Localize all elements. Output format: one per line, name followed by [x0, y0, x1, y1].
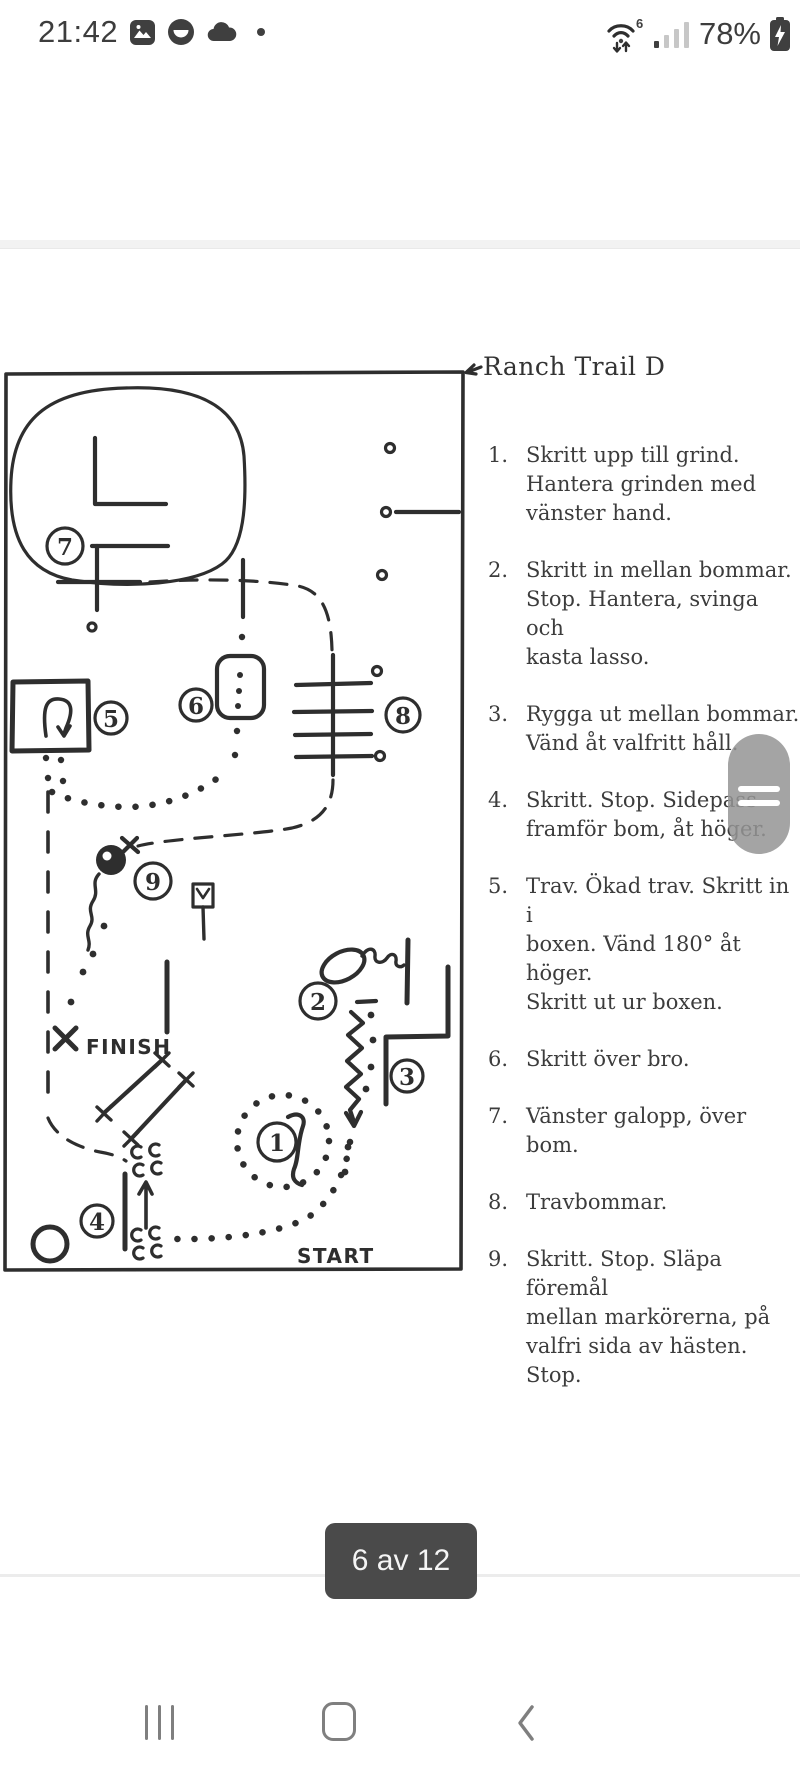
instruction-item: 7. Vänster galopp, över bom. — [488, 1102, 800, 1160]
obstacle-8-trot-poles: 8 — [294, 655, 420, 775]
svg-text:3: 3 — [399, 1064, 415, 1091]
scroll-handle[interactable] — [728, 734, 790, 854]
path-dashed-corner — [48, 1118, 126, 1161]
svg-text:7: 7 — [57, 534, 73, 561]
page-title: Ranch Trail D — [483, 352, 665, 381]
svg-text:1: 1 — [269, 1130, 285, 1157]
obstacle-1-circle: 1 — [176, 1095, 350, 1239]
instruction-number: 8. — [488, 1188, 526, 1217]
back-chevron-icon — [520, 1707, 532, 1739]
svg-text:5: 5 — [103, 706, 119, 733]
obstacle-2-lasso: 2 — [300, 943, 404, 1019]
instruction-text: Skritt in mellan bommar. Stop. Hantera, … — [526, 556, 800, 672]
obstacle-4-sidepass: 4 — [33, 1144, 161, 1261]
arena-border — [5, 372, 463, 1270]
instruction-number: 1. — [488, 441, 526, 528]
instruction-text: Skritt över bro. — [526, 1045, 690, 1074]
scroll-handle-grip-line — [738, 786, 780, 792]
gate-markers — [378, 444, 460, 580]
status-left-cluster: 21:42 — [38, 14, 265, 50]
svg-text:6: 6 — [188, 693, 204, 720]
instruction-item: 9. Skritt. Stop. Släpa föremål mellan ma… — [488, 1245, 800, 1390]
instruction-number: 2. — [488, 556, 526, 672]
notification-dot-icon — [257, 28, 265, 36]
gallery-notification-icon — [129, 19, 156, 46]
instruction-number: 9. — [488, 1245, 526, 1390]
diagonal-poles — [97, 1053, 193, 1146]
status-right-cluster: 6 78% — [603, 14, 792, 54]
svg-text:6: 6 — [636, 16, 643, 31]
instruction-text: Skritt. Stop. Släpa föremål mellan markö… — [526, 1245, 800, 1390]
top-divider — [0, 240, 800, 249]
instruction-list: 1. Skritt upp till grind. Hantera grinde… — [488, 441, 800, 1418]
obstacle-9-drag-object: 9 — [68, 838, 171, 1005]
obstacle-7-gallop-loop: 7 — [11, 388, 245, 617]
instruction-item: 8. Travbommar. — [488, 1188, 800, 1217]
battery-charging-icon — [768, 16, 792, 52]
instruction-text: Travbommar. — [526, 1188, 667, 1217]
home-button[interactable] — [322, 1702, 356, 1741]
instruction-item: 6. Skritt över bro. — [488, 1045, 800, 1074]
svg-text:9: 9 — [145, 869, 161, 896]
back-button[interactable] — [517, 1704, 535, 1742]
start-label: START — [297, 1244, 375, 1268]
svg-text:2: 2 — [310, 989, 326, 1016]
svg-text:8: 8 — [395, 703, 411, 730]
page-indicator: 6 av 12 — [325, 1523, 477, 1599]
path-dotted-walk — [43, 755, 228, 807]
signal-bars-icon — [652, 17, 692, 51]
instruction-text: Trav. Ökad trav. Skritt in i boxen. Vänd… — [526, 872, 800, 1017]
course-map: 7 8 5 6 — [0, 360, 485, 1275]
battery-percent: 78% — [699, 16, 761, 52]
status-bar: 21:42 6 78% — [0, 0, 800, 64]
face-notification-icon — [167, 18, 195, 46]
flag-marker — [193, 884, 213, 939]
recents-icon — [145, 1705, 148, 1740]
clock: 21:42 — [38, 14, 118, 50]
obstacle-5-turn-box: 5 — [12, 623, 127, 751]
instruction-number: 4. — [488, 786, 526, 844]
obstacle-6-bridge: 6 — [180, 634, 264, 758]
recents-icon — [171, 1705, 174, 1740]
instruction-number: 5. — [488, 872, 526, 1017]
instruction-text: Skritt upp till grind. Hantera grinden m… — [526, 441, 756, 528]
path-dashed-lower — [138, 780, 333, 846]
instruction-number: 6. — [488, 1045, 526, 1074]
title-arrow-icon — [466, 365, 481, 374]
instruction-item: 1. Skritt upp till grind. Hantera grinde… — [488, 441, 800, 528]
instruction-item: 2. Skritt in mellan bommar. Stop. Hanter… — [488, 556, 800, 672]
instruction-text: Vänster galopp, över bom. — [526, 1102, 800, 1160]
wifi6-icon: 6 — [603, 14, 645, 54]
svg-text:4: 4 — [89, 1209, 105, 1236]
recents-icon — [158, 1705, 161, 1740]
recents-button[interactable] — [145, 1705, 174, 1740]
instruction-number: 3. — [488, 700, 526, 758]
cloud-notification-icon — [206, 21, 238, 43]
instruction-number: 7. — [488, 1102, 526, 1160]
scroll-handle-grip-line — [738, 800, 780, 806]
instruction-item: 5. Trav. Ökad trav. Skritt in i boxen. V… — [488, 872, 800, 1017]
